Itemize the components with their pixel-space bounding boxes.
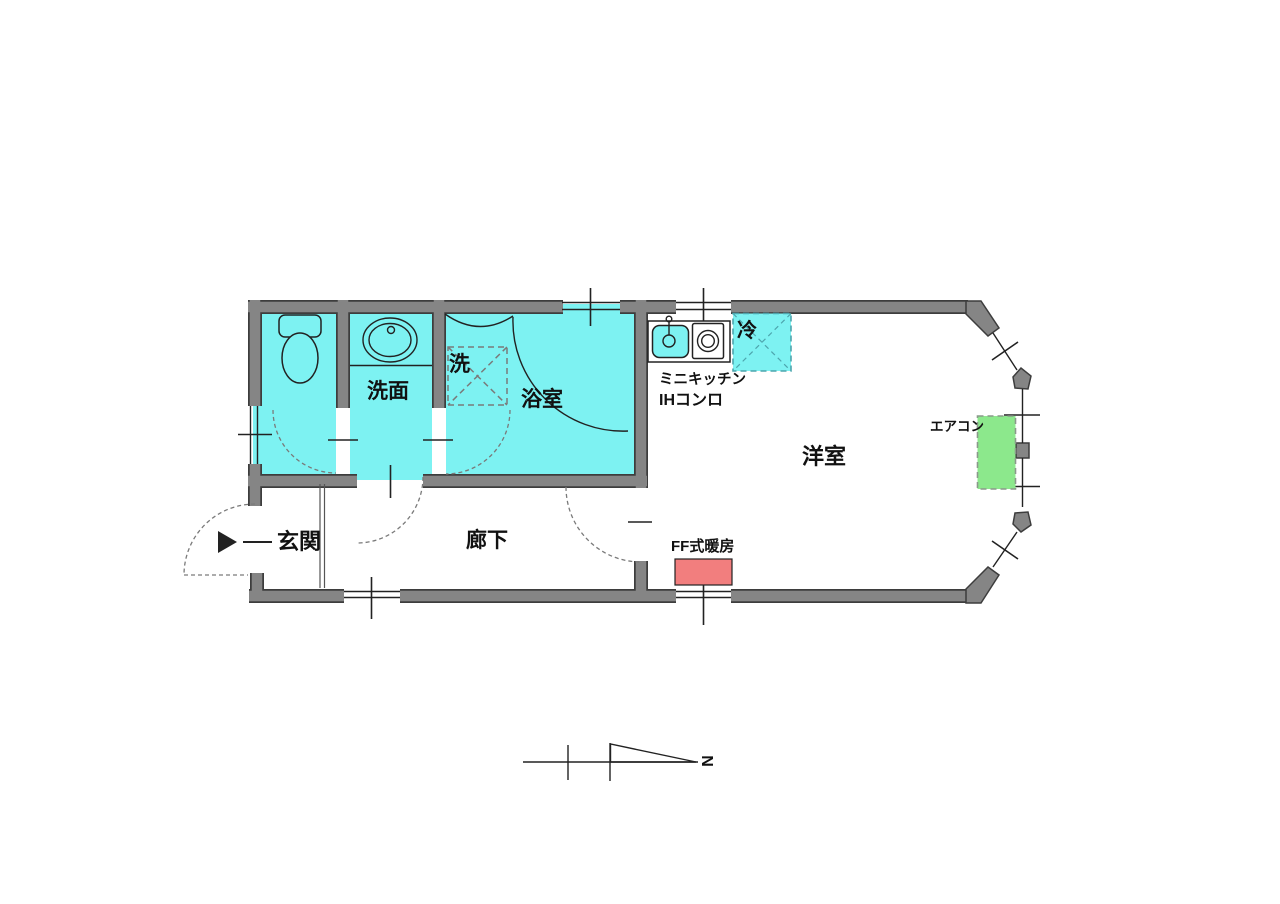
floorplan-drawing: N 玄関 廊下 洋室 洗面 浴室 洗 冷 ミニキッチン IHコンロ FF式暖房 … <box>0 0 1280 904</box>
label-western-room: 洋室 <box>802 444 846 469</box>
label-mini-kitchen: ミニキッチン <box>659 371 746 388</box>
entrance-arrow-icon <box>218 531 237 553</box>
label-ih-stove: IHコンロ <box>659 392 723 409</box>
bay-post-top <box>1013 368 1031 389</box>
bay-window-center-post <box>1016 443 1029 458</box>
compass-north-triangle <box>611 744 697 762</box>
ff-heater-box <box>675 559 732 585</box>
bay-post-bottom <box>1013 512 1031 532</box>
label-washer: 洗 <box>449 353 470 376</box>
bay-corner-top-wall <box>966 301 999 336</box>
label-ff-heater: FF式暖房 <box>671 537 734 555</box>
compass-north-letter: N <box>698 755 715 767</box>
floorplan-canvas: N 玄関 廊下 洋室 洗面 浴室 洗 冷 ミニキッチン IHコンロ FF式暖房 … <box>0 0 1280 904</box>
equipment <box>675 416 1016 585</box>
compass: N <box>523 743 715 781</box>
label-bathroom: 浴室 <box>521 387 563 411</box>
label-entrance: 玄関 <box>277 529 321 554</box>
label-washroom: 洗面 <box>367 380 409 403</box>
label-corridor: 廊下 <box>466 528 508 552</box>
mini-kitchen <box>648 314 791 372</box>
kitchen-sink <box>653 326 689 358</box>
corridor-room-door-swing-arc <box>566 487 641 562</box>
toilet-bowl <box>282 333 318 383</box>
label-aircon: エアコン <box>930 419 984 434</box>
label-fridge: 冷 <box>737 318 757 342</box>
bay-corner-bottom-wall <box>966 567 999 603</box>
